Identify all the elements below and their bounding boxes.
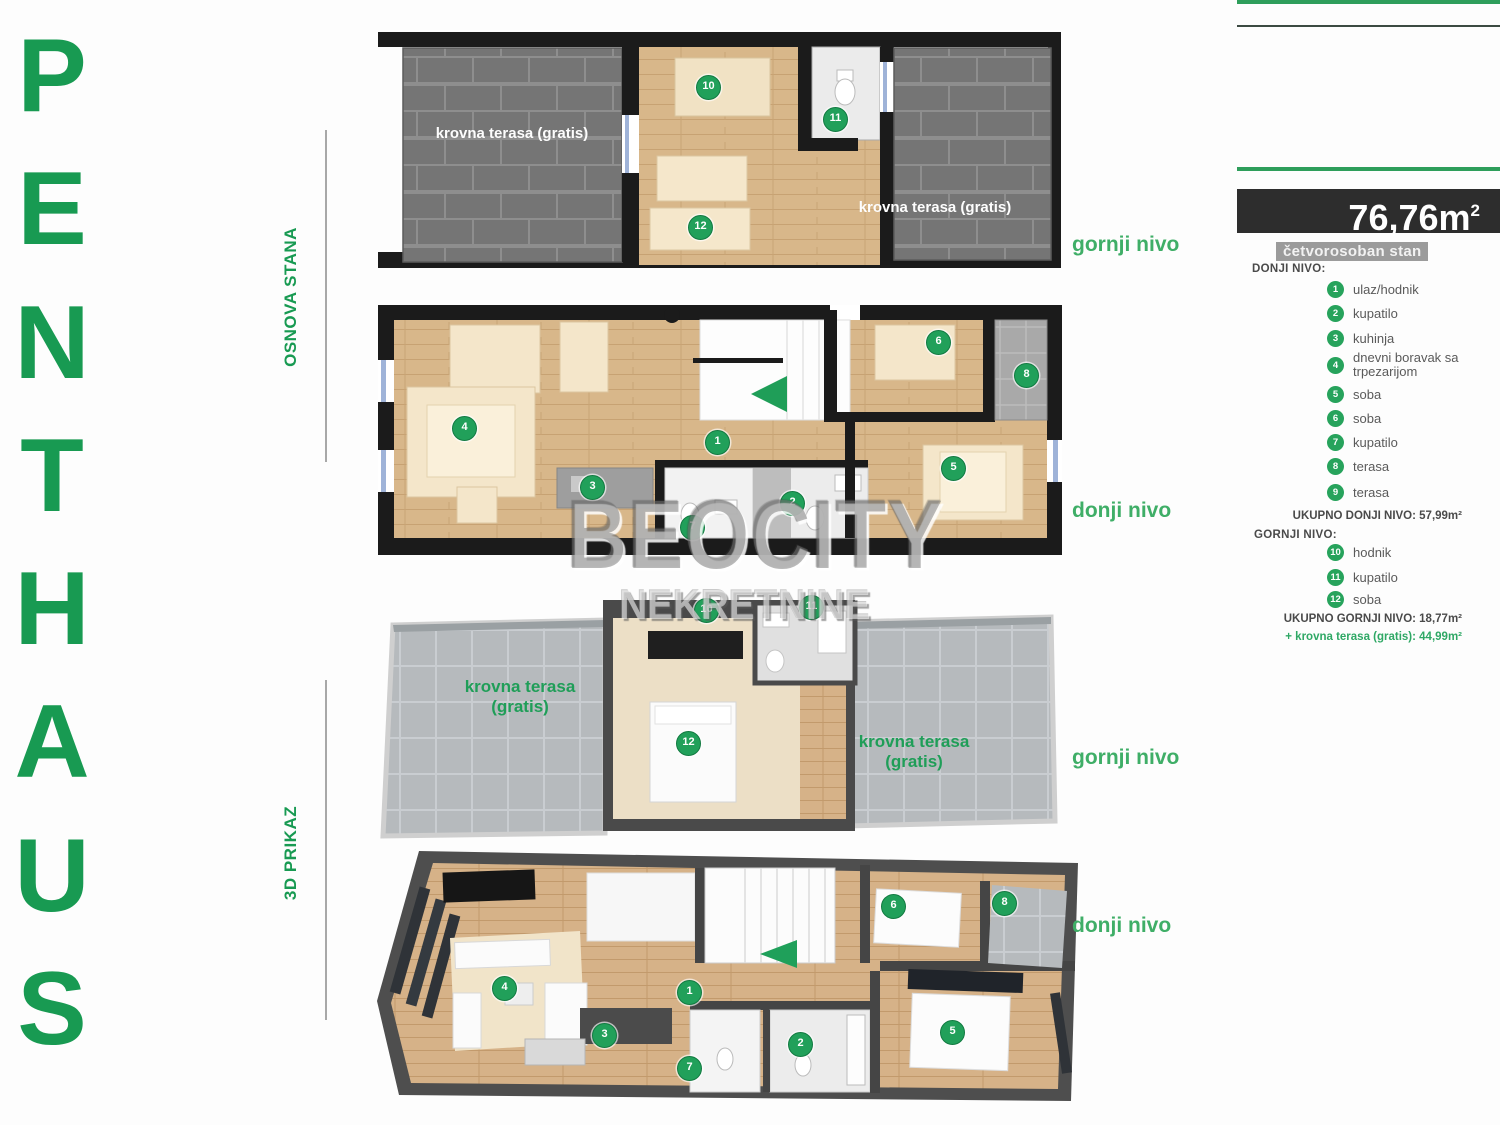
room-marker-3d-6: 6 <box>881 894 906 919</box>
brand-letter: N <box>14 303 89 384</box>
brand-letter: T <box>20 436 84 517</box>
plan1-terrace-left: krovna terasa (gratis) <box>403 48 622 262</box>
floorplan-gornji-nivo: krovna terasa (gratis) krovna te <box>375 30 1067 272</box>
terrace-right-label: krovna terasa (gratis) <box>859 199 1012 216</box>
legend-item-9: 9 terasa <box>1327 484 1389 501</box>
terrace3d-left-label-1: krovna terasa <box>465 677 576 696</box>
room-marker-1: 1 <box>705 430 730 455</box>
legend-item-label: soba <box>1353 411 1381 426</box>
section-bracket-osnova <box>325 130 327 462</box>
legend-item-12: 12 soba <box>1327 591 1381 608</box>
room-marker-3d-8: 8 <box>992 891 1017 916</box>
room-marker-3d-2: 2 <box>788 1032 813 1057</box>
terrace3d-right-label-2: (gratis) <box>885 752 943 771</box>
room-marker-6: 6 <box>926 330 951 355</box>
brand-letter: E <box>17 169 86 250</box>
legend-header-gornji: GORNJI NIVO: <box>1254 529 1337 541</box>
apartment-type-badge: četvorosoban stan <box>1276 242 1428 261</box>
legend-total-gornji: UKUPNO GORNJI NIVO: 18,77m² <box>1232 613 1462 625</box>
legend-item-label: soba <box>1353 592 1381 607</box>
legend-item-8: 8 terasa <box>1327 458 1389 475</box>
legend-item-number: 7 <box>1327 434 1344 451</box>
panel-top-green-bar <box>1237 0 1500 4</box>
level-label-gornji-plan: gornji nivo <box>1072 233 1179 257</box>
terrace3d-right-label-1: krovna terasa <box>859 732 970 751</box>
r3d2-bathrooms <box>690 1001 870 1092</box>
legend-item-3: 3 kuhinja <box>1327 330 1394 347</box>
legend-item-2: 2 kupatilo <box>1327 305 1398 322</box>
section-bracket-3d <box>325 680 327 1020</box>
legend-item-label: kuhinja <box>1353 331 1394 346</box>
r3d2-stairs <box>705 868 835 968</box>
legend-item-number: 10 <box>1327 544 1344 561</box>
legend-item-label: kupatilo <box>1353 435 1398 450</box>
watermark-nekretnine: NEKRETNINE <box>561 584 929 626</box>
level-label-donji-3d: donji nivo <box>1072 914 1171 938</box>
render3d-donji-nivo <box>355 843 1105 1125</box>
room-marker-3d-1: 1 <box>677 980 702 1005</box>
panel-dark-line <box>1237 25 1500 27</box>
brand-letter: S <box>17 969 86 1050</box>
legend-item-7: 7 kupatilo <box>1327 434 1398 451</box>
plan1-divider-wall <box>622 47 639 262</box>
render3d-gornji-nivo: krovna terasa (gratis) krovna terasa (gr… <box>363 593 1075 843</box>
brand-letter: U <box>14 836 89 917</box>
legend-item-number: 8 <box>1327 458 1344 475</box>
area-value: 76,76m <box>1348 197 1470 238</box>
brand-letter: A <box>14 702 89 783</box>
legend-item-label: kupatilo <box>1353 306 1398 321</box>
room-marker-11: 11 <box>823 107 848 132</box>
terrace3d-left-label-2: (gratis) <box>491 697 549 716</box>
legend-item-1: 1 ulaz/hodnik <box>1327 281 1419 298</box>
room-marker-3d-12: 12 <box>676 731 701 756</box>
listing-sheet: P E N T H A U S OSNOVA STANA 3D PRIKAZ k… <box>0 0 1500 1125</box>
legend-item-label: hodnik <box>1353 545 1391 560</box>
legend-item-label: dnevni boravak sa trpezarijom <box>1353 351 1478 379</box>
legend-item-label: ulaz/hodnik <box>1353 282 1419 297</box>
brand-letter: P <box>17 36 86 117</box>
legend-item-number: 6 <box>1327 410 1344 427</box>
plan1-wall-right-of-room <box>880 47 894 265</box>
plan1-bathroom-11 <box>798 47 880 151</box>
room-marker-3d-4: 4 <box>492 976 517 1001</box>
r3d2-terrace-8 <box>980 881 1067 969</box>
r3d1-room-block <box>603 600 855 831</box>
legend-item-number: 9 <box>1327 484 1344 501</box>
room-marker-8: 8 <box>1014 363 1039 388</box>
legend-total-donji: UKUPNO DONJI NIVO: 57,99m² <box>1232 510 1462 522</box>
legend-item-number: 1 <box>1327 281 1344 298</box>
r3d1-terrace-right: krovna terasa (gratis) <box>846 617 1055 826</box>
room-marker-3d-5: 5 <box>940 1020 965 1045</box>
level-label-donji-plan: donji nivo <box>1072 499 1171 523</box>
legend-item-5: 5 soba <box>1327 386 1381 403</box>
room-marker-3d-7: 7 <box>677 1056 702 1081</box>
panel-green-line <box>1237 167 1500 171</box>
r3d1-terrace-left: krovna terasa (gratis) <box>383 620 605 836</box>
area-banner: 76,76m2 <box>1237 189 1500 233</box>
room-marker-4: 4 <box>452 416 477 441</box>
legend-item-label: terasa <box>1353 485 1389 500</box>
section-label-3d-prikaz: 3D PRIKAZ <box>280 733 302 973</box>
legend-item-label: soba <box>1353 387 1381 402</box>
legend-item-label: kupatilo <box>1353 570 1398 585</box>
room-marker-12: 12 <box>688 215 713 240</box>
brand-penthaus: P E N T H A U S <box>8 36 96 1050</box>
section-label-osnova-stana: OSNOVA STANA <box>280 177 302 417</box>
legend-header-donji: DONJI NIVO: <box>1252 263 1326 275</box>
legend-item-number: 5 <box>1327 386 1344 403</box>
terrace-left-label: krovna terasa (gratis) <box>436 125 589 142</box>
legend-item-number: 4 <box>1327 357 1344 374</box>
legend-total-terrace: + krovna terasa (gratis): 44,99m² <box>1232 631 1462 643</box>
plan2-terrace-8 <box>983 310 1047 420</box>
level-label-gornji-3d: gornji nivo <box>1072 746 1179 770</box>
legend-item-number: 12 <box>1327 591 1344 608</box>
watermark-beocity: BEOCITY <box>523 486 987 583</box>
room-marker-3d-3: 3 <box>592 1023 617 1048</box>
legend-item-4: 4 dnevni boravak sa trpezarijom <box>1327 351 1478 379</box>
legend-item-number: 3 <box>1327 330 1344 347</box>
room-marker-10: 10 <box>696 75 721 100</box>
area-sup: 2 <box>1471 201 1480 220</box>
room-marker-5: 5 <box>941 456 966 481</box>
brand-letter: H <box>14 569 89 650</box>
legend-item-10: 10 hodnik <box>1327 544 1391 561</box>
legend-item-number: 11 <box>1327 569 1344 586</box>
legend-item-6: 6 soba <box>1327 410 1381 427</box>
legend-item-11: 11 kupatilo <box>1327 569 1398 586</box>
legend-item-number: 2 <box>1327 305 1344 322</box>
legend-item-label: terasa <box>1353 459 1389 474</box>
